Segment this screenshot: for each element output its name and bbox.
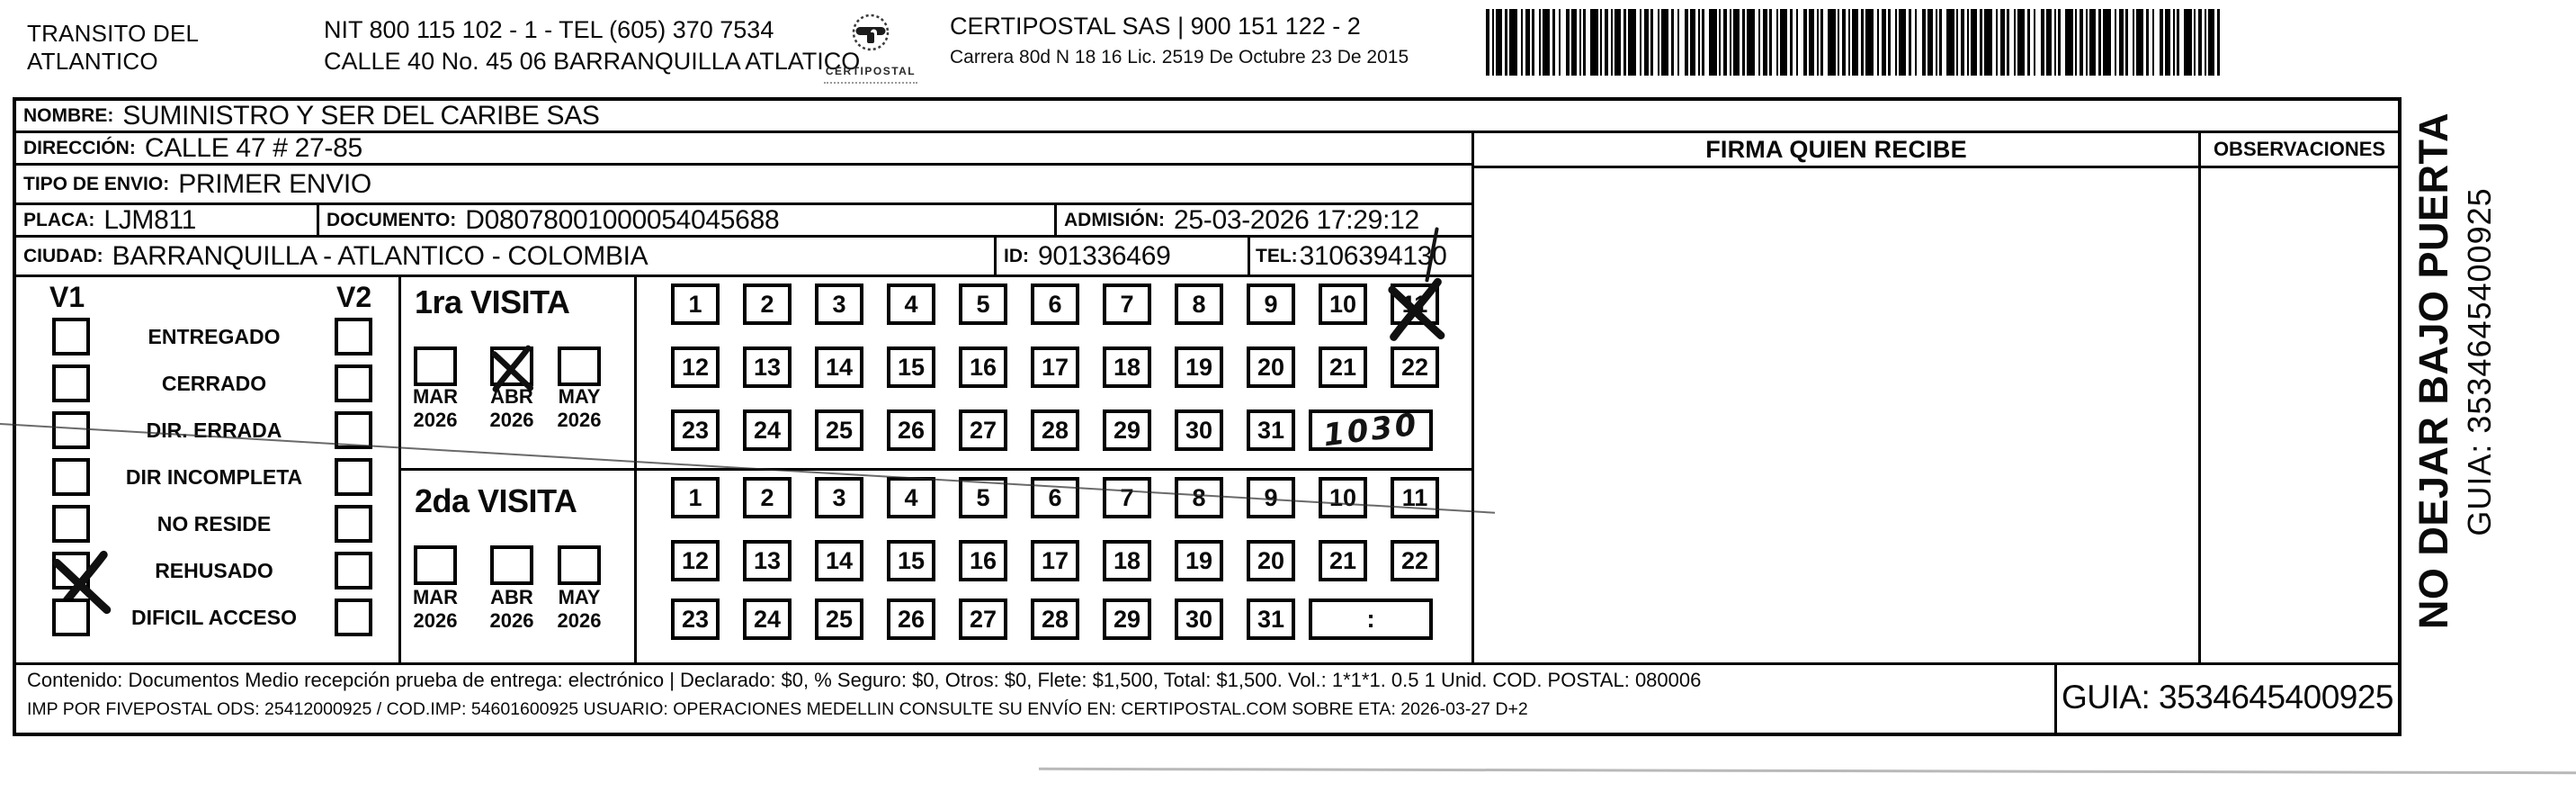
nit-line: NIT 800 115 102 - 1 - TEL (605) 370 7534 (324, 14, 860, 46)
day-box: 28 (1031, 598, 1079, 640)
day-box: 10 (1319, 283, 1367, 325)
scanned-delivery-form: TRANSITO DEL ATLANTICO NIT 800 115 102 -… (0, 0, 2576, 792)
v1-checkbox (52, 505, 90, 543)
month-year: 2026 (536, 409, 622, 432)
day-box: 15 (887, 540, 935, 581)
day-box: 4 (887, 283, 935, 325)
handwritten-x-mark (1384, 277, 1447, 340)
sender-name: TRANSITO DEL ATLANTICO (27, 20, 199, 76)
checklist-item-label: NO RESIDE (97, 506, 331, 542)
day-box: 16 (959, 346, 1007, 388)
month-checkbox (490, 545, 533, 585)
day-box: 22 (1391, 540, 1439, 581)
observaciones-header: OBSERVACIONES (2201, 133, 2398, 168)
day-box: 27 (959, 409, 1007, 451)
day-box: 21 (1319, 540, 1367, 581)
admision-cell: ADMISIÓN: 25-03-2026 17:29:12 (1057, 205, 1471, 238)
checklist-item-label: REHUSADO (97, 553, 331, 589)
day-box: 23 (671, 598, 720, 640)
day-box: 15 (887, 346, 935, 388)
sender-name-line1: TRANSITO DEL (27, 20, 199, 48)
company-address: Carrera 80d N 18 16 Lic. 2519 De Octubre… (950, 47, 1409, 68)
scan-edge-line (1039, 768, 2576, 774)
day-box: 4 (887, 477, 935, 518)
logo-text: CERTIPOSTAL (808, 65, 934, 77)
content-declaration: Contenido: Documentos Medio recepción pr… (27, 669, 2042, 720)
checklist-item-label: CERRADO (97, 365, 331, 401)
day-box: 24 (743, 409, 792, 451)
company-block: CERTIPOSTAL SAS | 900 151 122 - 2 Carrer… (950, 13, 1409, 68)
documento-cell: DOCUMENTO: D08078001000054045688 (319, 205, 1057, 238)
day-box: 3 (815, 477, 863, 518)
tel-label: TEL: (1256, 246, 1298, 267)
month-name: MAY (536, 385, 622, 409)
logo-tagline (824, 79, 917, 84)
tipo-envio-row: TIPO DE ENVIO: PRIMER ENVIO (16, 166, 1471, 205)
day-box: 28 (1031, 409, 1079, 451)
day-box: 25 (815, 598, 863, 640)
nombre-value: SUMINISTRO Y SER DEL CARIBE SAS (122, 101, 599, 131)
certipostal-logo: CERTIPOSTAL (808, 13, 934, 84)
v2-header: V2 (336, 281, 371, 314)
checklist-item-label: ENTREGADO (97, 319, 331, 355)
checklist-item-label: DIFICIL ACCESO (97, 599, 331, 635)
direccion-label: DIRECCIÓN: (23, 138, 136, 159)
tipo-envio-label: TIPO DE ENVIO: (23, 174, 169, 195)
day-box: 27 (959, 598, 1007, 640)
guia-number: GUIA: 3534645400925 (2057, 665, 2398, 730)
month-label: MAY2026 (536, 586, 622, 633)
day-box: 1 (671, 283, 720, 325)
month-year: 2026 (536, 609, 622, 633)
documento-value: D08078001000054045688 (465, 205, 779, 236)
time-value: : (1366, 605, 1374, 634)
first-visit-title: 1ra VISITA (415, 283, 569, 321)
direccion-row: DIRECCIÓN: CALLE 47 # 27-85 (16, 133, 1471, 166)
tipo-envio-value: PRIMER ENVIO (178, 169, 371, 200)
v1-checkbox (52, 364, 90, 402)
day-box: 6 (1031, 283, 1079, 325)
side-guia-text: GUIA: 3534645400925 (2461, 150, 2497, 573)
id-cell: ID: 901336469 (997, 238, 1250, 277)
v1-checkbox (52, 411, 90, 449)
day-box: 18 (1103, 540, 1151, 581)
day-box: 17 (1031, 540, 1079, 581)
month-label: MAR2026 (392, 385, 479, 432)
tel-value: 3106394130 (1300, 241, 1447, 272)
month-checkbox (490, 346, 533, 386)
month-checkbox (558, 346, 601, 386)
day-box: 5 (959, 283, 1007, 325)
carrier-address-line: CALLE 40 No. 45 06 BARRANQUILLA ATLATICO (324, 46, 860, 77)
day-box: 19 (1175, 540, 1223, 581)
day-box: 9 (1247, 283, 1295, 325)
day-box: 18 (1103, 346, 1151, 388)
v2-checkbox (335, 364, 372, 402)
day-box: 13 (743, 540, 792, 581)
carrier-contact-block: NIT 800 115 102 - 1 - TEL (605) 370 7534… (324, 14, 860, 77)
v1-checkbox (52, 598, 90, 636)
day-box: 31 (1247, 598, 1295, 640)
day-box: 12 (671, 346, 720, 388)
day-box: 26 (887, 409, 935, 451)
month-checkbox (414, 545, 457, 585)
firma-header: FIRMA QUIEN RECIBE (1474, 133, 2198, 168)
day-box: 16 (959, 540, 1007, 581)
content-line: Contenido: Documentos Medio recepción pr… (27, 669, 2042, 692)
company-line: CERTIPOSTAL SAS | 900 151 122 - 2 (950, 13, 1409, 40)
placa-value: LJM811 (103, 205, 196, 236)
day-box: 1 (671, 477, 720, 518)
documento-label: DOCUMENTO: (326, 210, 456, 231)
month-checkbox (558, 545, 601, 585)
day-box: 30 (1175, 598, 1223, 640)
direccion-value: CALLE 47 # 27-85 (145, 133, 362, 164)
placa-label: PLACA: (23, 210, 94, 231)
day-box: 14 (815, 540, 863, 581)
side-warning-text: NO DEJAR BAJO PUERTA (2411, 101, 2457, 641)
day-box: 19 (1175, 346, 1223, 388)
day-box: 21 (1319, 346, 1367, 388)
month-label: MAR2026 (392, 586, 479, 633)
day-box: 2 (743, 477, 792, 518)
ciudad-value: BARRANQUILLA - ATLANTICO - COLOMBIA (112, 241, 648, 272)
day-box: 11 (1391, 477, 1439, 518)
imp-line: IMP POR FIVEPOSTAL ODS: 25412000925 / CO… (27, 699, 2042, 720)
v1-checkbox (52, 458, 90, 496)
v1-checkbox (52, 552, 90, 589)
visit-section-divider (398, 468, 1471, 471)
month-checkbox (414, 346, 457, 386)
day-box: 10 (1319, 477, 1367, 518)
ciudad-label: CIUDAD: (23, 246, 103, 267)
day-box: 8 (1175, 477, 1223, 518)
v2-checkbox (335, 552, 372, 589)
day-box: 25 (815, 409, 863, 451)
footer-divider (16, 662, 2398, 665)
time-box: : (1309, 598, 1433, 640)
v2-checkbox (335, 318, 372, 355)
month-label: MAY2026 (536, 385, 622, 432)
barcode (1486, 9, 2220, 76)
v1-header: V1 (49, 281, 85, 314)
day-box: 13 (743, 346, 792, 388)
day-box: 23 (671, 409, 720, 451)
second-visit-title: 2da VISITA (415, 482, 577, 520)
day-box: 30 (1175, 409, 1223, 451)
month-year: 2026 (392, 409, 479, 432)
nombre-row: NOMBRE: SUMINISTRO Y SER DEL CARIBE SAS (16, 101, 2398, 133)
id-label: ID: (1004, 246, 1029, 267)
admision-value: 25-03-2026 17:29:12 (1174, 205, 1419, 236)
day-box: 8 (1175, 283, 1223, 325)
observaciones-column-divider (2198, 133, 2201, 665)
time-value: 1030 (1321, 407, 1421, 454)
day-box: 12 (671, 540, 720, 581)
day-box: 31 (1247, 409, 1295, 451)
day-box: 17 (1031, 346, 1079, 388)
day-box: 7 (1103, 283, 1151, 325)
id-value: 901336469 (1038, 241, 1170, 272)
firma-column-divider (1471, 133, 1474, 665)
day-box: 24 (743, 598, 792, 640)
v2-checkbox (335, 458, 372, 496)
month-name: MAR (392, 385, 479, 409)
day-box: 20 (1247, 540, 1295, 581)
day-box: 2 (743, 283, 792, 325)
day-box: 11 (1391, 283, 1439, 325)
month-year: 2026 (392, 609, 479, 633)
sender-name-line2: ATLANTICO (27, 48, 199, 76)
month-name: MAR (392, 586, 479, 609)
ciudad-cell: CIUDAD: BARRANQUILLA - ATLANTICO - COLOM… (16, 238, 997, 277)
v1-checkbox (52, 318, 90, 355)
delivery-form: NOMBRE: SUMINISTRO Y SER DEL CARIBE SAS … (13, 97, 2402, 736)
day-box: 7 (1103, 477, 1151, 518)
day-box: 29 (1103, 598, 1151, 640)
day-box: 3 (815, 283, 863, 325)
admision-label: ADMISIÓN: (1064, 210, 1165, 231)
day-box: 26 (887, 598, 935, 640)
postal-horn-icon (845, 13, 897, 59)
checklist-item-label: DIR INCOMPLETA (97, 459, 331, 495)
v2-checkbox (335, 505, 372, 543)
day-box: 22 (1391, 346, 1439, 388)
day-box: 6 (1031, 477, 1079, 518)
time-box: 1030 (1309, 409, 1433, 451)
day-box: 29 (1103, 409, 1151, 451)
v2-checkbox (335, 598, 372, 636)
tel-cell: TEL: 3106394130 (1250, 238, 1471, 277)
placa-cell: PLACA: LJM811 (16, 205, 319, 238)
nombre-label: NOMBRE: (23, 105, 113, 127)
day-box: 14 (815, 346, 863, 388)
month-name: MAY (536, 586, 622, 609)
day-box: 20 (1247, 346, 1295, 388)
